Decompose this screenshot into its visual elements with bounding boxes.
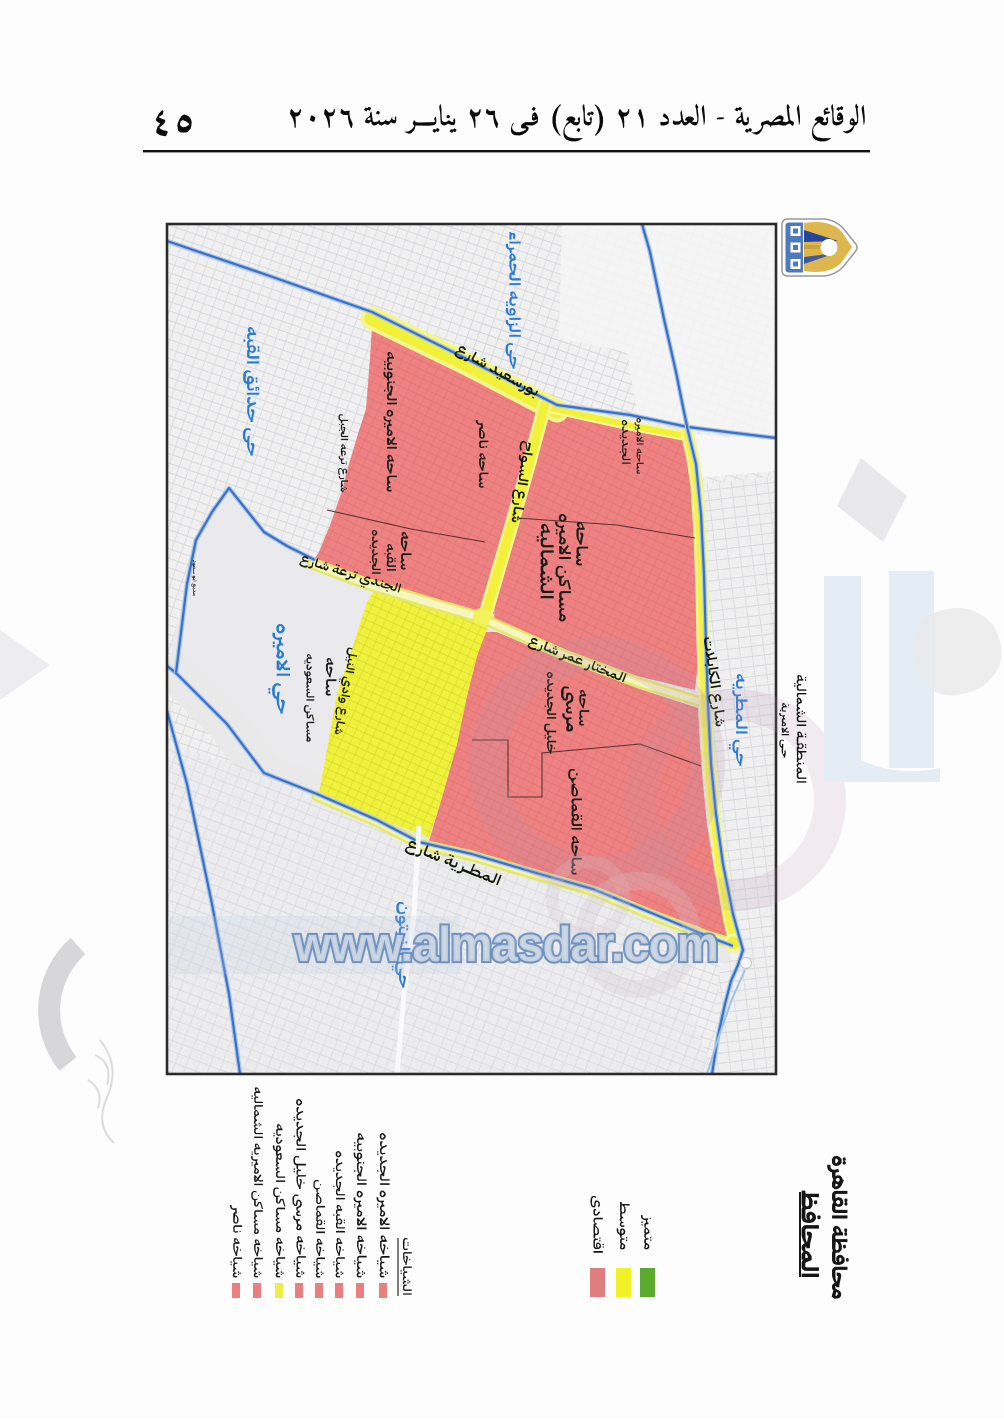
- svg-text:www.almasdar.com: www.almasdar.com: [293, 918, 718, 972]
